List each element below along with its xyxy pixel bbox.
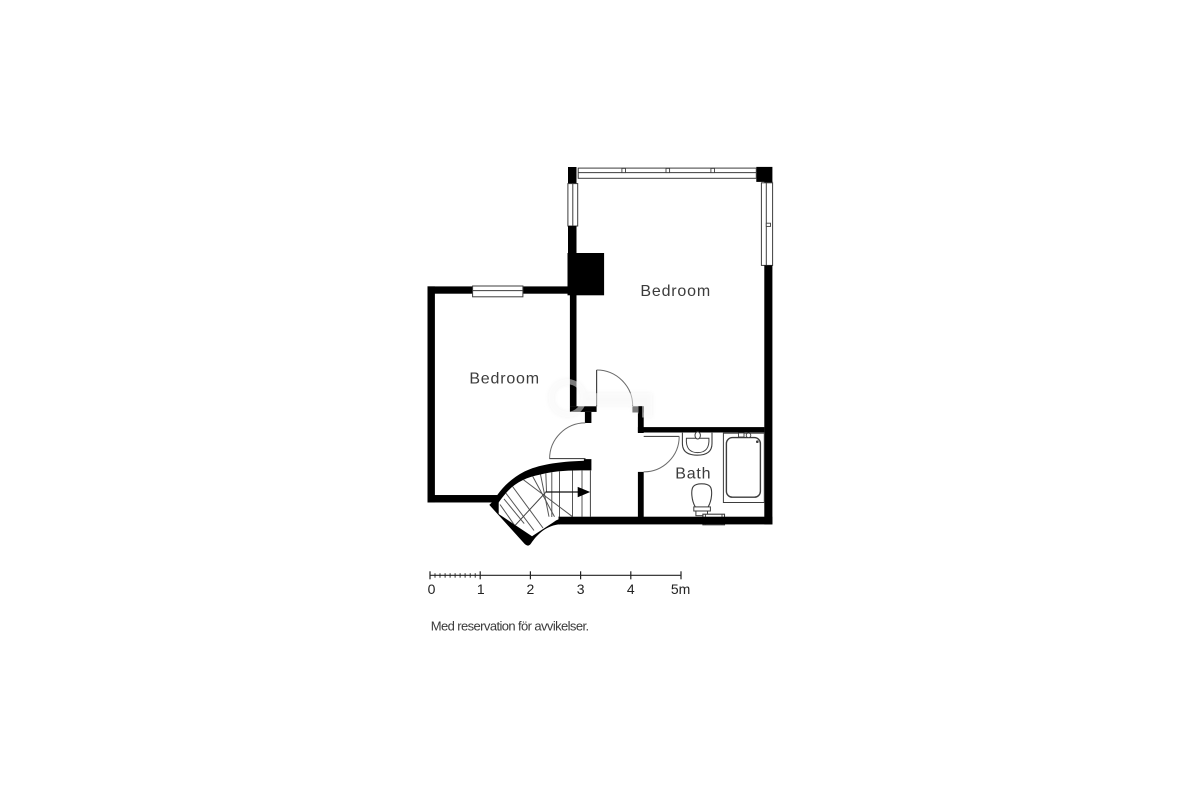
svg-text:5m: 5m <box>671 581 690 597</box>
svg-text:Bedroom: Bedroom <box>640 283 711 300</box>
svg-text:Med reservation för avvikelser: Med reservation för avvikelser. <box>431 618 589 633</box>
svg-text:2: 2 <box>527 581 535 597</box>
svg-text:0: 0 <box>428 581 436 597</box>
svg-text:Bath: Bath <box>675 465 711 482</box>
svg-text:3: 3 <box>577 581 585 597</box>
svg-text:1: 1 <box>477 581 485 597</box>
svg-text:4: 4 <box>627 581 635 597</box>
svg-text:Bedroom: Bedroom <box>469 370 540 387</box>
